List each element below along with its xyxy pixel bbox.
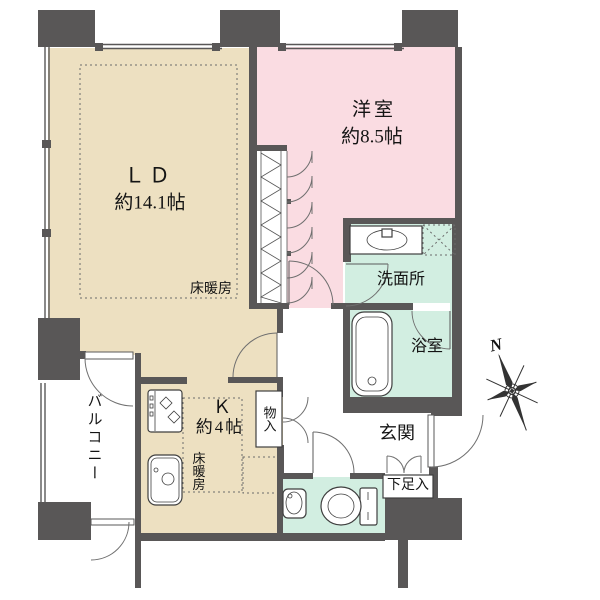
storage-doors	[283, 397, 308, 443]
toilet-icon	[321, 487, 377, 525]
vanity-sink-icon	[350, 226, 422, 254]
kitchen-size: 約4帖	[196, 419, 245, 436]
kitchen-sink-icon	[148, 455, 182, 505]
floor-plan: ＬＤ 約14.1帖 床暖房 洋室 約8.5帖 洗面所 浴室 玄関 Ｋ 約4帖 床…	[0, 0, 600, 600]
washroom-label: 洗面所	[377, 272, 425, 288]
shoe-cabinet-label: 下足入	[387, 479, 429, 493]
ld-room-label: ＬＤ	[124, 166, 174, 187]
entrance-label: 玄関	[379, 424, 415, 442]
western-room-size: 約8.5帖	[341, 128, 403, 147]
compass-icon	[474, 345, 551, 440]
shoe-cabinet-doors	[387, 456, 421, 473]
entrance-front-door	[428, 415, 483, 467]
ld-floor-heating-label: 床暖房	[190, 283, 232, 297]
stove-icon	[148, 390, 182, 432]
toilet-hand-sink-icon	[283, 489, 306, 518]
kitchen-label: Ｋ	[213, 398, 231, 416]
bathtub-icon	[352, 312, 392, 396]
western-room-label: 洋室	[352, 101, 396, 120]
balcony-partition-door	[91, 519, 134, 560]
bathroom-label: 浴室	[411, 339, 443, 355]
ld-room-size: 約14.1帖	[114, 194, 185, 213]
storage-label: 物入	[263, 406, 276, 432]
balcony-label: バルコニー	[86, 393, 101, 483]
toilet-door	[313, 432, 354, 473]
kitchen-floor-heating-label: 床暖房	[192, 452, 205, 491]
floor-plan-drawing	[0, 0, 600, 600]
